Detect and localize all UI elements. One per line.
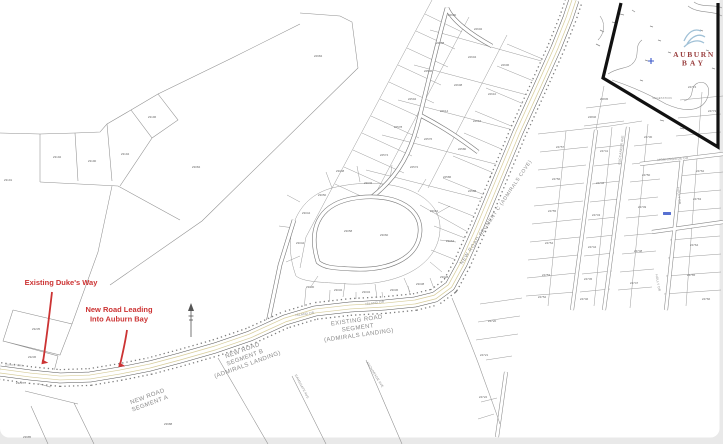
lot-number: 23042 — [296, 241, 305, 245]
svg-text:23048: 23048 — [336, 169, 345, 173]
svg-text:22600: 22600 — [448, 13, 457, 17]
svg-text:23032: 23032 — [334, 288, 343, 292]
svg-text:23985: 23985 — [23, 435, 32, 439]
svg-text:24774: 24774 — [688, 85, 697, 89]
lot-number: 22984 — [314, 54, 323, 58]
lot-number: 24762 — [696, 169, 705, 173]
svg-text:24846: 24846 — [588, 115, 597, 119]
lot-number: 24756 — [552, 177, 561, 181]
svg-text:24755: 24755 — [548, 209, 557, 213]
svg-text:24743: 24743 — [592, 213, 601, 217]
lot-number: 22616 — [473, 119, 482, 123]
lot-number: 24720 — [488, 319, 497, 323]
svg-text:22572: 22572 — [410, 165, 419, 169]
lot-number: 24764 — [690, 243, 699, 247]
lot-number: 22580 — [458, 147, 467, 151]
lot-number: 23034 — [362, 290, 371, 294]
lot-number: 22608 — [454, 83, 463, 87]
lot-number: 24755 — [548, 209, 557, 213]
svg-text:24746: 24746 — [580, 297, 589, 301]
lot-number: 24754 — [545, 241, 554, 245]
svg-text:24764: 24764 — [690, 243, 699, 247]
svg-text:24756: 24756 — [552, 177, 561, 181]
svg-text:24773: 24773 — [708, 109, 717, 113]
plat-map-page: AUBURN BAY 23192231902319423196231912308… — [0, 0, 723, 444]
auburn-bay-logo-line2: BAY — [682, 59, 706, 68]
lot-number: 23196 — [148, 115, 157, 119]
lot-number: 23036 — [390, 288, 399, 292]
lot-number: 24721 — [480, 353, 489, 357]
lot-number: 22600 — [448, 13, 457, 17]
svg-text:23235: 23235 — [32, 327, 41, 331]
svg-text:Existing Duke's Way: Existing Duke's Way — [25, 278, 99, 287]
lot-number: 24766 — [702, 297, 711, 301]
lot-number: 23236 — [28, 355, 37, 359]
lot-number: 24742 — [596, 181, 605, 185]
lot-number: 23062 — [430, 209, 439, 213]
lot-number: 24748 — [634, 249, 643, 253]
svg-text:23062: 23062 — [430, 209, 439, 213]
lot-number: 24773 — [708, 109, 717, 113]
lot-number: 22572 — [410, 165, 419, 169]
svg-text:23058: 23058 — [344, 229, 353, 233]
svg-text:23034: 23034 — [362, 290, 371, 294]
svg-text:24757: 24757 — [556, 145, 565, 149]
highlight-mark — [663, 212, 671, 215]
lot-number: 23190 — [88, 159, 97, 163]
svg-text:24765: 24765 — [687, 273, 696, 277]
lot-number: 22596 — [424, 69, 433, 73]
lot-number: 22578 — [394, 125, 403, 129]
lot-number: 23030 — [306, 285, 315, 289]
lot-number: 22614 — [440, 109, 449, 113]
svg-text:23192: 23192 — [53, 155, 62, 159]
svg-text:22598: 22598 — [436, 41, 445, 45]
lot-number: 24845 — [600, 97, 609, 101]
svg-text:24750: 24750 — [642, 173, 651, 177]
svg-text:24749: 24749 — [638, 205, 647, 209]
svg-text:23190: 23190 — [88, 159, 97, 163]
lot-number: 23084 — [192, 165, 201, 169]
svg-text:New Road LeadingInto Auburn Ba: New Road LeadingInto Auburn Bay — [85, 305, 153, 323]
svg-text:24762: 24762 — [696, 169, 705, 173]
svg-text:22602: 22602 — [474, 27, 483, 31]
lot-number: 22594 — [408, 97, 417, 101]
red-annotation: New Road LeadingInto Auburn Bay — [85, 305, 153, 323]
lot-number: 23038 — [416, 282, 425, 286]
map-card-top-square — [0, 0, 720, 60]
lot-number: 23985 — [23, 435, 32, 439]
lot-number: 23060 — [380, 233, 389, 237]
svg-text:22586: 22586 — [443, 175, 452, 179]
svg-text:24845: 24845 — [600, 97, 609, 101]
plat-map: AUBURN BAY 23192231902319423196231912308… — [0, 0, 723, 444]
lot-number: 22586 — [443, 175, 452, 179]
road-label: VEGETATION — [652, 96, 672, 100]
lot-number: 23192 — [53, 155, 62, 159]
svg-text:23044: 23044 — [302, 211, 311, 215]
svg-text:23042: 23042 — [296, 241, 305, 245]
lot-number: 24722 — [479, 395, 488, 399]
svg-text:23237: 23237 — [16, 381, 25, 385]
lot-number: 22604 — [468, 55, 477, 59]
lot-number: 24746 — [580, 297, 589, 301]
lot-number: 23028 — [440, 275, 449, 279]
svg-text:23046: 23046 — [364, 181, 373, 185]
svg-text:23050: 23050 — [318, 193, 327, 197]
svg-text:23036: 23036 — [390, 288, 399, 292]
svg-text:23064: 23064 — [446, 239, 455, 243]
svg-text:24730: 24730 — [644, 135, 653, 139]
lot-number: 24747 — [630, 281, 639, 285]
svg-text:22608: 22608 — [454, 83, 463, 87]
lot-number: 22610 — [488, 92, 497, 96]
svg-text:24763: 24763 — [693, 197, 702, 201]
svg-text:23196: 23196 — [148, 115, 157, 119]
svg-text:24741: 24741 — [600, 149, 609, 153]
svg-text:23060: 23060 — [380, 233, 389, 237]
svg-text:24744: 24744 — [588, 245, 597, 249]
lot-number: 23064 — [446, 239, 455, 243]
svg-text:22596: 22596 — [424, 69, 433, 73]
svg-text:22616: 22616 — [473, 119, 482, 123]
lot-number: 23048 — [336, 169, 345, 173]
lot-number: 24749 — [638, 205, 647, 209]
lot-number: 23237 — [16, 381, 25, 385]
svg-text:24721: 24721 — [480, 353, 489, 357]
svg-text:22604: 22604 — [468, 55, 477, 59]
svg-text:24745: 24745 — [584, 277, 593, 281]
lot-number: 22602 — [474, 27, 483, 31]
lot-number: 24745 — [584, 277, 593, 281]
svg-text:24720: 24720 — [488, 319, 497, 323]
svg-text:22614: 22614 — [440, 109, 449, 113]
lot-number: 22574 — [380, 153, 389, 157]
svg-text:23191: 23191 — [4, 178, 13, 182]
lot-number: 24730 — [644, 135, 653, 139]
lot-number: 24846 — [588, 115, 597, 119]
lot-number: 23988 — [164, 422, 173, 426]
svg-text:22574: 22574 — [380, 153, 389, 157]
lot-number: 24750 — [642, 173, 651, 177]
svg-text:22610: 22610 — [488, 92, 497, 96]
lot-number: 24744 — [588, 245, 597, 249]
svg-text:23194: 23194 — [121, 152, 130, 156]
svg-text:24722: 24722 — [479, 395, 488, 399]
lot-number: 24741 — [600, 149, 609, 153]
svg-text:24752: 24752 — [538, 295, 547, 299]
svg-text:23038: 23038 — [416, 282, 425, 286]
svg-text:23084: 23084 — [192, 165, 201, 169]
svg-text:23988: 23988 — [164, 422, 173, 426]
lot-number: 23046 — [364, 181, 373, 185]
svg-text:22606: 22606 — [501, 63, 510, 67]
svg-text:24766: 24766 — [702, 297, 711, 301]
svg-text:23028: 23028 — [440, 275, 449, 279]
svg-text:22984: 22984 — [314, 54, 323, 58]
svg-text:22576: 22576 — [424, 137, 433, 141]
lot-number: 22606 — [501, 63, 510, 67]
lot-number: 24757 — [556, 145, 565, 149]
lot-number: 24743 — [592, 213, 601, 217]
lot-number: 24763 — [693, 197, 702, 201]
lot-number: 23235 — [32, 327, 41, 331]
lot-number: 22576 — [424, 137, 433, 141]
svg-text:22588: 22588 — [468, 189, 477, 193]
red-annotation: Existing Duke's Way — [25, 278, 99, 287]
lot-number: 24753 — [542, 273, 551, 277]
svg-text:23236: 23236 — [28, 355, 37, 359]
lot-number: 23194 — [121, 152, 130, 156]
lot-number: 24765 — [687, 273, 696, 277]
svg-text:24754: 24754 — [545, 241, 554, 245]
lot-number: 24752 — [538, 295, 547, 299]
svg-text:VEGETATION: VEGETATION — [652, 96, 672, 100]
svg-text:22594: 22594 — [408, 97, 417, 101]
svg-text:24747: 24747 — [630, 281, 639, 285]
lot-number: 23191 — [4, 178, 13, 182]
svg-text:24748: 24748 — [634, 249, 643, 253]
lot-number: 22598 — [436, 41, 445, 45]
lot-number: 22588 — [468, 189, 477, 193]
lot-number: 23050 — [318, 193, 327, 197]
lot-number: 23058 — [344, 229, 353, 233]
lot-number: 24774 — [688, 85, 697, 89]
lot-number: 23032 — [334, 288, 343, 292]
svg-text:24742: 24742 — [596, 181, 605, 185]
svg-text:22578: 22578 — [394, 125, 403, 129]
lot-number: 23044 — [302, 211, 311, 215]
svg-text:24753: 24753 — [542, 273, 551, 277]
svg-text:23030: 23030 — [306, 285, 315, 289]
svg-text:22580: 22580 — [458, 147, 467, 151]
